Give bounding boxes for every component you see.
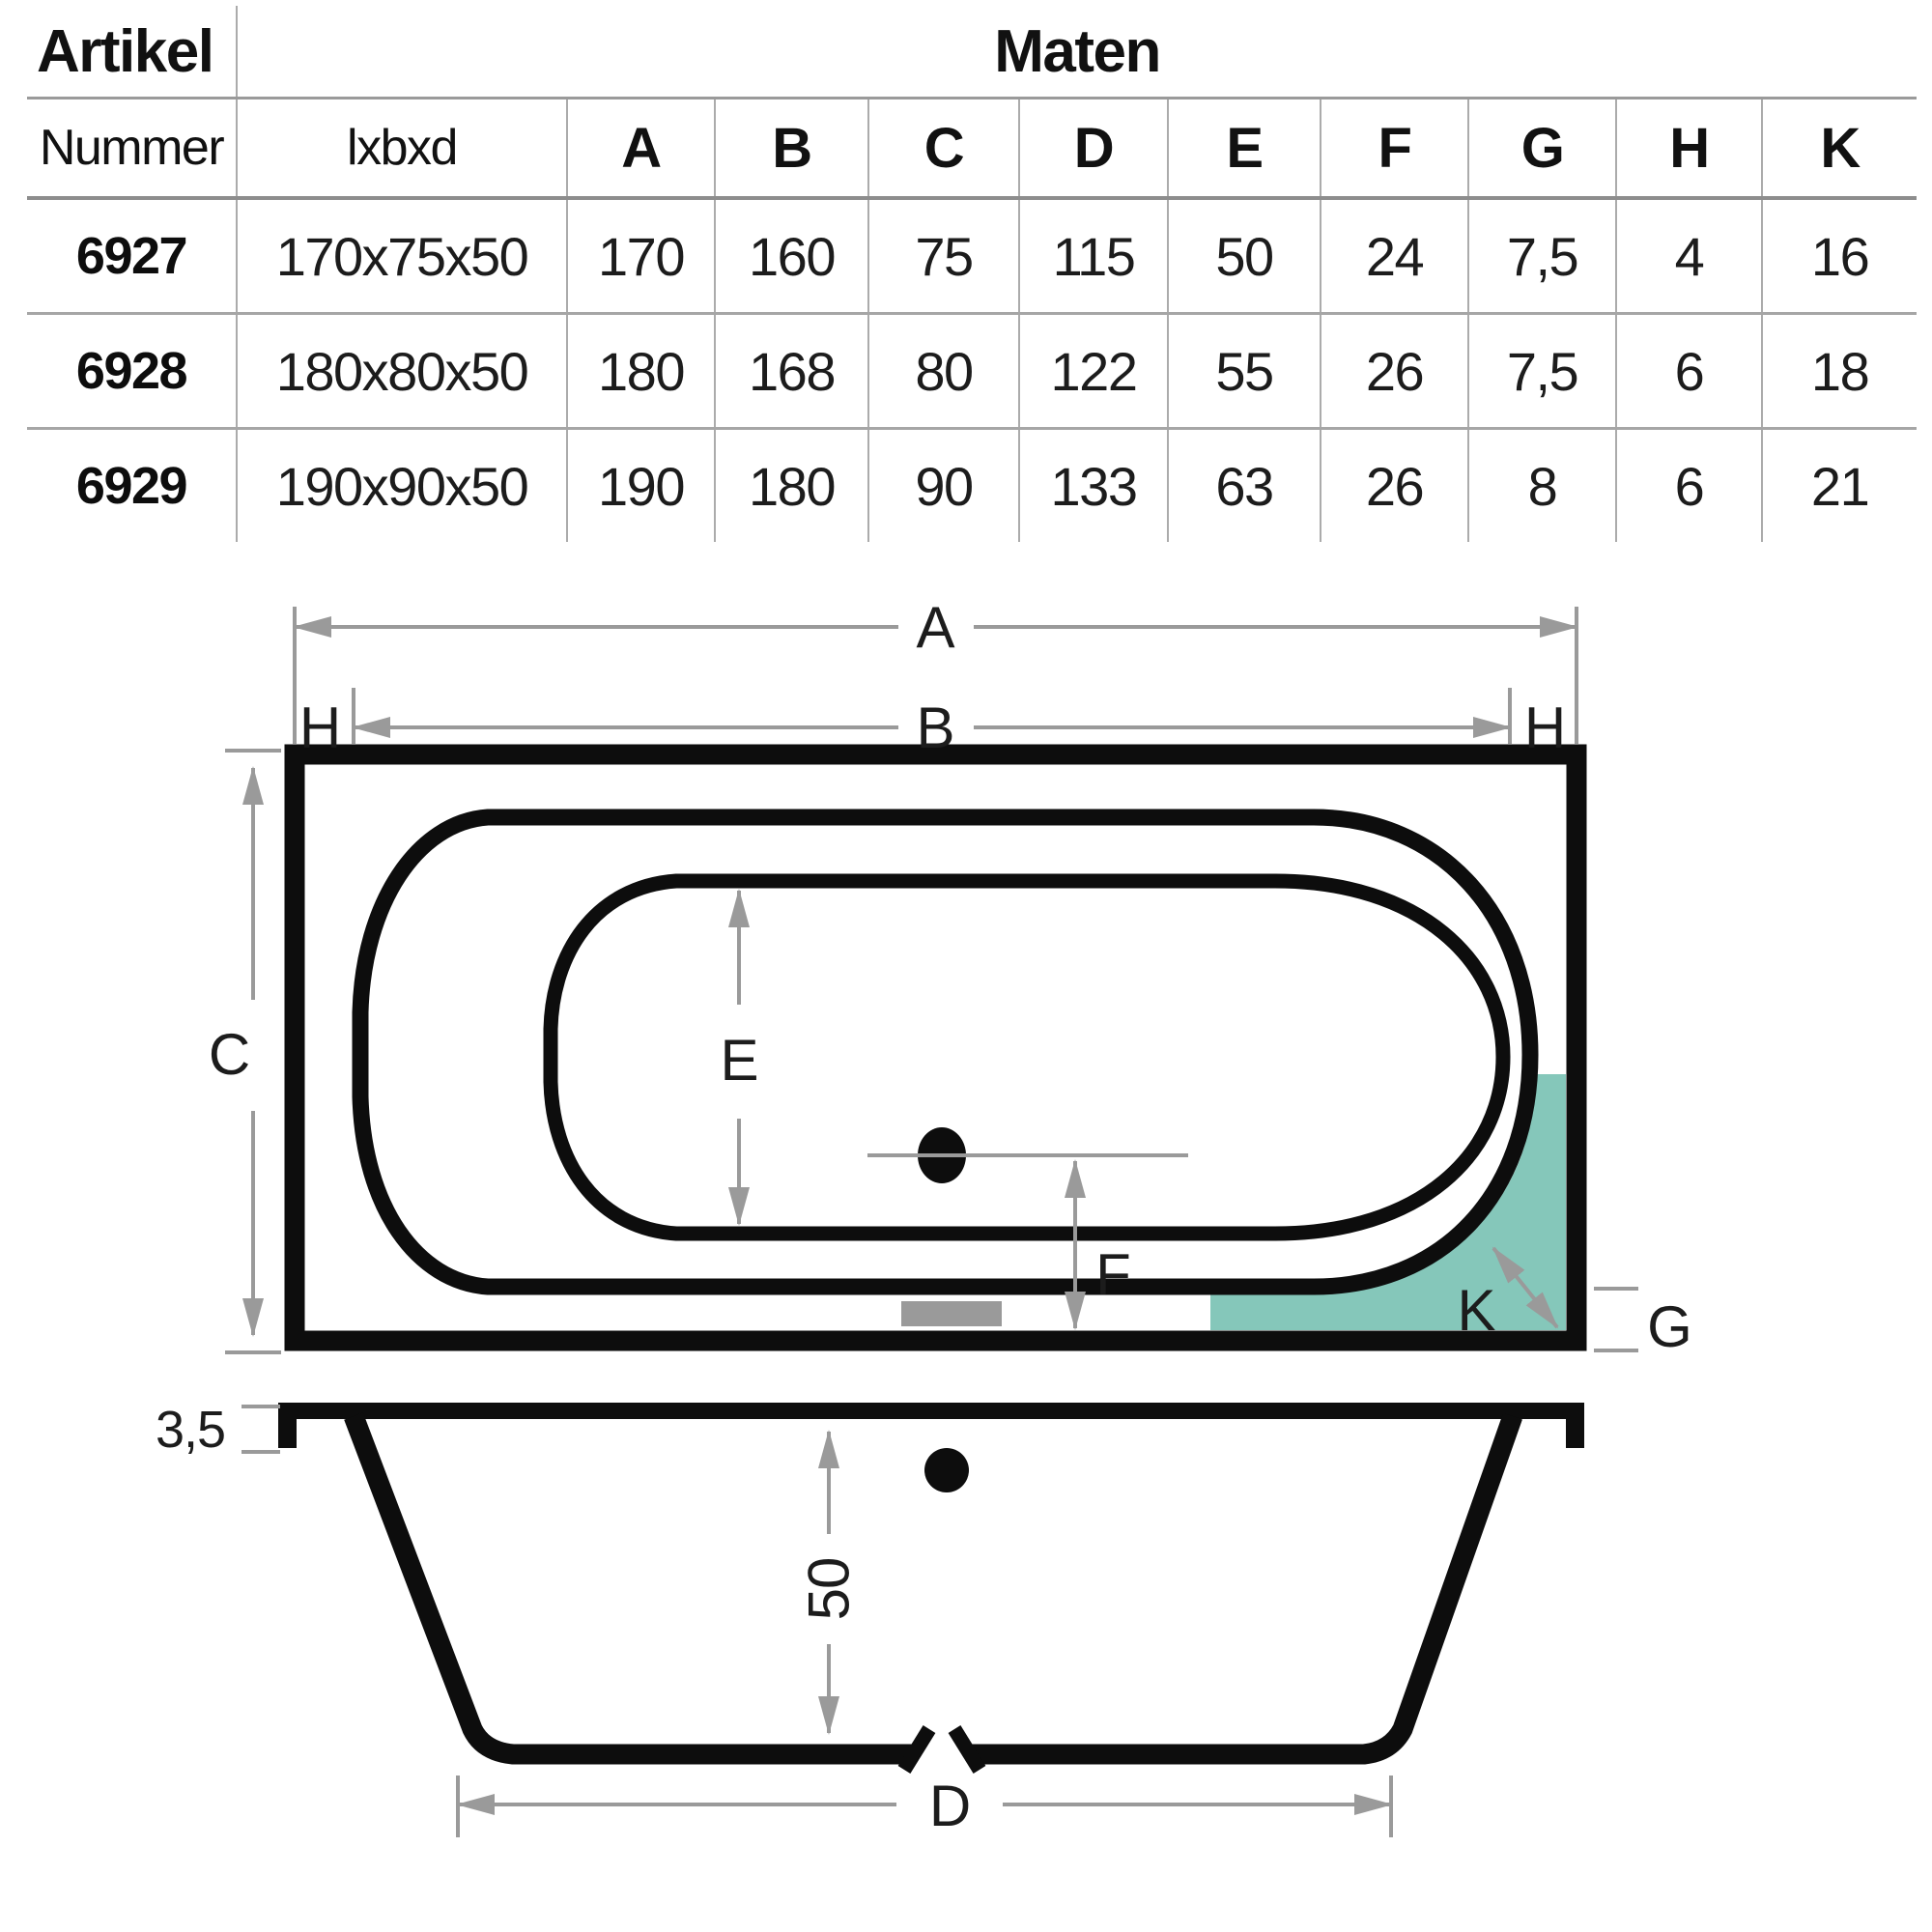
dimension-label-b: B <box>916 696 953 760</box>
rim-thickness-label: 3,5 <box>156 1401 225 1459</box>
bathtub-technical-drawing: A B H H C E F K <box>0 0 1932 1932</box>
dimension-label-c: C <box>209 1022 249 1087</box>
dimension-label-h-right: H <box>1524 696 1565 760</box>
dimension-label-f: F <box>1095 1242 1130 1307</box>
top-view: A B H H C E F K <box>209 595 1691 1359</box>
spec-sheet: { "table": { "header": { "artikel": "Art… <box>0 0 1932 1932</box>
dimension-g <box>1594 1289 1638 1350</box>
dimension-label-h-left: H <box>299 696 340 760</box>
dimension-rim-thickness <box>241 1406 280 1452</box>
rim-stub-left <box>278 1403 297 1448</box>
dimension-label-e: E <box>720 1028 757 1093</box>
tub-outer-rim <box>295 754 1577 1341</box>
dimension-label-a: A <box>916 595 954 660</box>
drain-dot-side <box>924 1448 969 1492</box>
overflow-bar <box>901 1301 1002 1326</box>
dimension-label-d: D <box>929 1774 970 1838</box>
side-view: 3,5 50 D <box>156 1401 1584 1838</box>
dimension-label-g: G <box>1647 1294 1691 1359</box>
rim-bar <box>278 1403 1584 1419</box>
depth-label: 50 <box>797 1558 862 1621</box>
rim-stub-right <box>1566 1403 1584 1448</box>
dimension-label-k: K <box>1457 1278 1495 1343</box>
dimension-d <box>458 1776 1391 1837</box>
